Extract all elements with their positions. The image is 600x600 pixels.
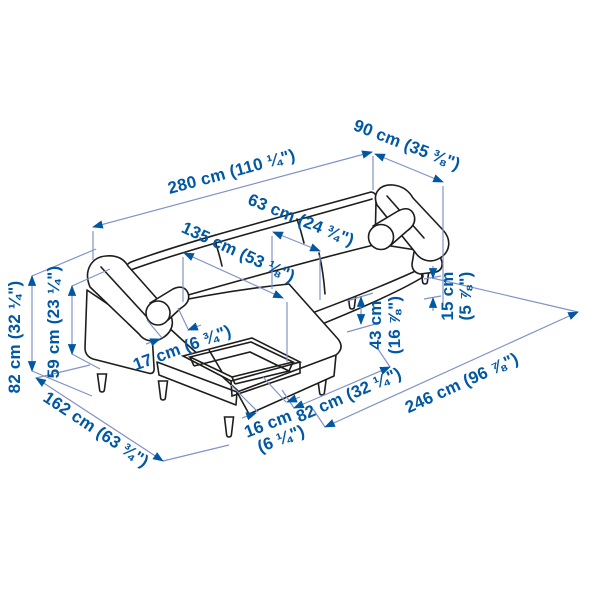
label-armrest-height: 59 cm (23 ¼") bbox=[44, 266, 63, 379]
label-width-without-chaise: 246 cm (96 ⅞") bbox=[402, 349, 521, 417]
label-seat-height-in: (16 ⅞") bbox=[385, 296, 404, 355]
label-depth: 90 cm (35 ⅜") bbox=[351, 116, 463, 174]
label-leg-height-cm: 15 cm bbox=[438, 271, 457, 320]
label-chaise-total-depth: 162 cm (63 ¾") bbox=[40, 388, 153, 471]
diagram-svg: 280 cm (110 ¼") 90 cm (35 ⅜") 63 cm (24 … bbox=[0, 0, 600, 600]
sofa-dimension-diagram: 280 cm (110 ¼") 90 cm (35 ⅜") 63 cm (24 … bbox=[0, 0, 600, 600]
label-leg-height-in: (5 ⅞") bbox=[456, 272, 475, 321]
label-seat-height-cm: 43 cm bbox=[366, 300, 385, 349]
label-total-height: 82 cm (32 ¼") bbox=[5, 281, 24, 394]
dim-line-right-width bbox=[325, 312, 578, 427]
